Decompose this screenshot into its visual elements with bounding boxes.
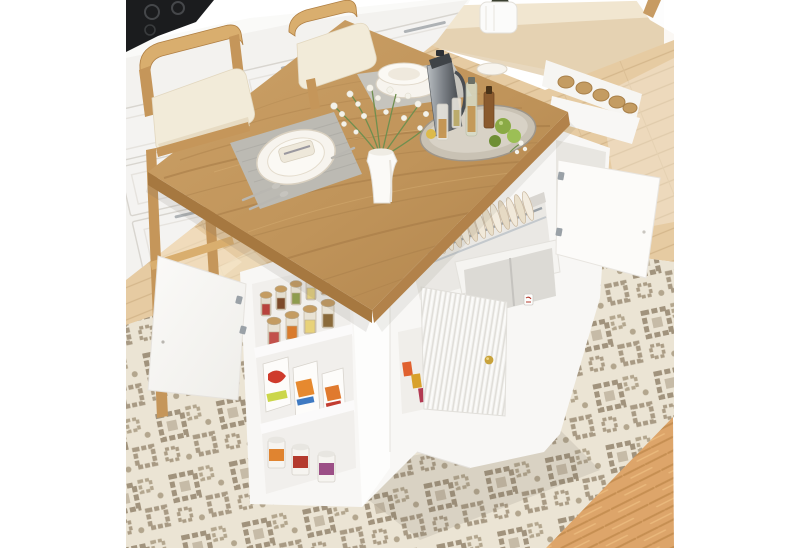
fluted-door xyxy=(421,287,507,416)
brown-bottle xyxy=(484,86,494,128)
white-planter xyxy=(480,0,517,33)
extra-plate xyxy=(477,63,507,75)
food-can xyxy=(318,451,335,482)
product-photo xyxy=(0,0,800,548)
gold-knob xyxy=(485,356,494,365)
spice-jar xyxy=(275,286,287,310)
glass-bottle xyxy=(466,77,477,136)
kitchen-island-scene xyxy=(0,0,800,548)
spice-jar xyxy=(260,292,272,316)
drawer-cup xyxy=(524,294,533,305)
cereal-box xyxy=(263,357,291,412)
photo-area xyxy=(103,0,674,548)
spice-jar xyxy=(303,305,317,334)
food-can xyxy=(268,437,285,468)
spice-jar xyxy=(267,317,281,346)
lemon xyxy=(426,129,436,139)
spice-jar xyxy=(285,311,299,340)
food-can xyxy=(292,444,309,475)
